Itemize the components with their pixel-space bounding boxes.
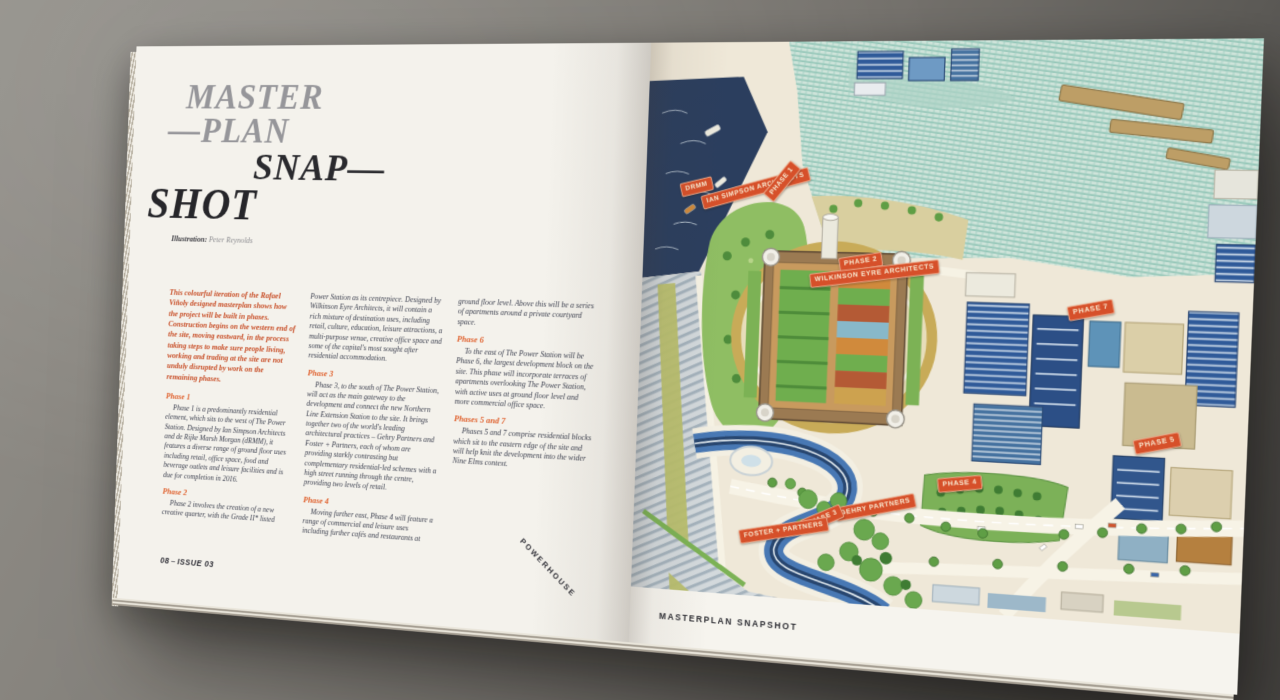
page-footer: 08–ISSUE 03 <box>160 555 214 569</box>
article-title: MASTER —PLAN SNAP— SHOT <box>168 81 388 229</box>
title-line-shot: SHOT <box>147 183 385 229</box>
phases-5-7-body: Phases 5 and 7 comprise residential bloc… <box>452 426 594 475</box>
left-page: MASTER —PLAN SNAP— SHOT Illustration: Pe… <box>118 43 652 643</box>
page-number: 08 <box>160 555 169 565</box>
credit-label: Illustration: <box>171 234 207 244</box>
phase-3-body: Phase 3, to the south of The Power Stati… <box>304 380 442 497</box>
article-body: This colourful iteration of the Rafael V… <box>161 287 599 557</box>
credit-name: Peter Reynolds <box>209 234 253 244</box>
illustration-credit: Illustration: Peter Reynolds <box>171 234 253 245</box>
magazine-spread: MASTER —PLAN SNAP— SHOT Illustration: Pe… <box>118 38 1264 695</box>
intro-paragraph: This colourful iteration of the Rafael V… <box>166 287 297 388</box>
masterplan-map: dRMM Ian Simpson Architects PHASE 1 PHAS… <box>631 38 1264 633</box>
phase-6-body: To the east of The Power Station will be… <box>454 346 597 414</box>
phase-1-body: Phase 1 is a predominantly residential e… <box>163 403 293 488</box>
issue-label: ISSUE 03 <box>177 557 214 569</box>
title-line-snap: SNAP— <box>253 148 386 186</box>
right-page: dRMM Ian Simpson Architects PHASE 1 PHAS… <box>629 38 1264 695</box>
map-illustration <box>631 38 1264 633</box>
caption-masterplan-snapshot: MASTERPLAN SNAPSHOT <box>659 611 798 632</box>
